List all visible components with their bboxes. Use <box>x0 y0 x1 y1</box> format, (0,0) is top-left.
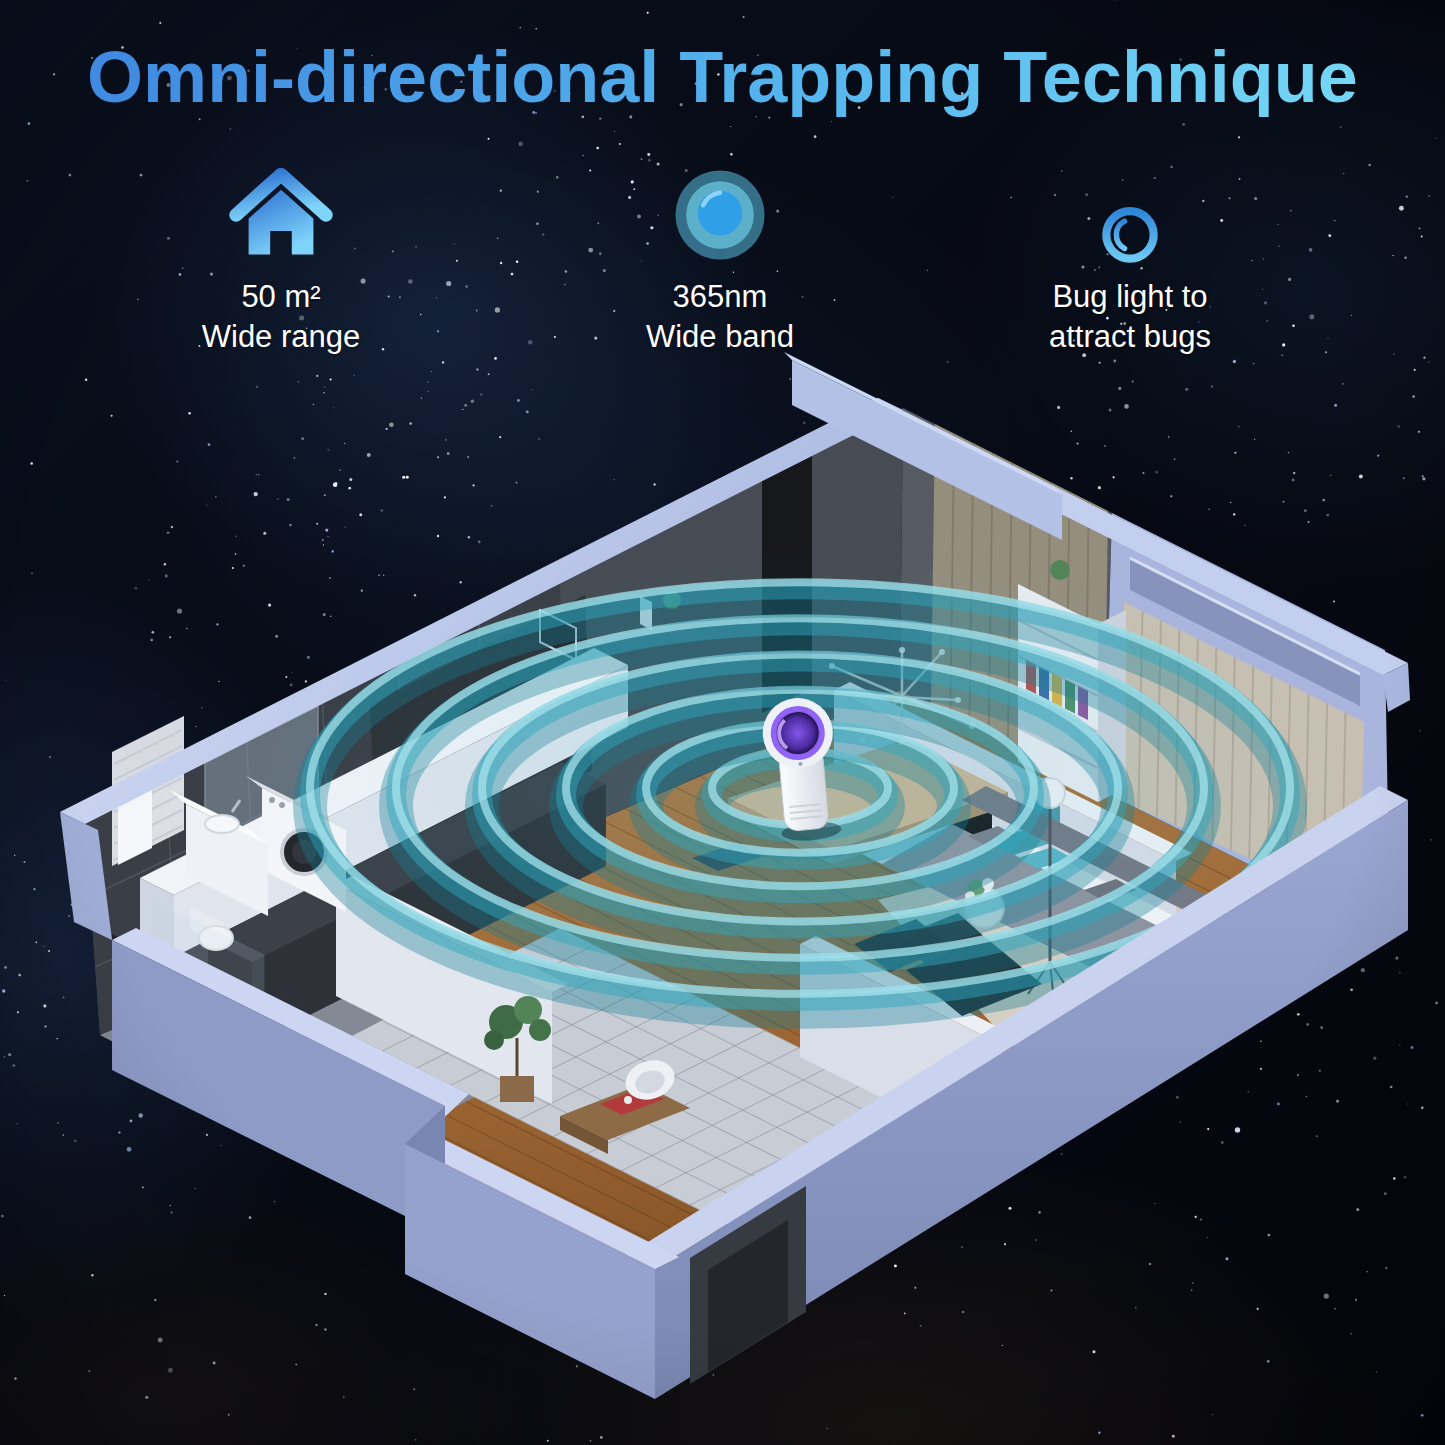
feature-wide-band: 365nm Wide band <box>530 160 910 357</box>
product-infographic: Omni-directional Trapping Technique 50 m… <box>0 0 1445 1445</box>
bug-light-bulb-icon <box>1088 160 1172 264</box>
uv-band-icon <box>671 160 769 264</box>
house-icon <box>227 160 335 264</box>
feature-label: Wide range <box>202 317 361 357</box>
feature-value: 365nm <box>673 277 768 317</box>
feature-wide-range: 50 m² Wide range <box>91 160 471 357</box>
feature-value: 50 m² <box>241 277 320 317</box>
feature-value: Bug light to <box>1052 277 1207 317</box>
page-title: Omni-directional Trapping Technique <box>0 36 1445 118</box>
feature-label: attract bugs <box>1049 317 1211 357</box>
feature-label: Wide band <box>646 317 794 357</box>
feature-bug-light: Bug light to attract bugs <box>940 160 1320 357</box>
